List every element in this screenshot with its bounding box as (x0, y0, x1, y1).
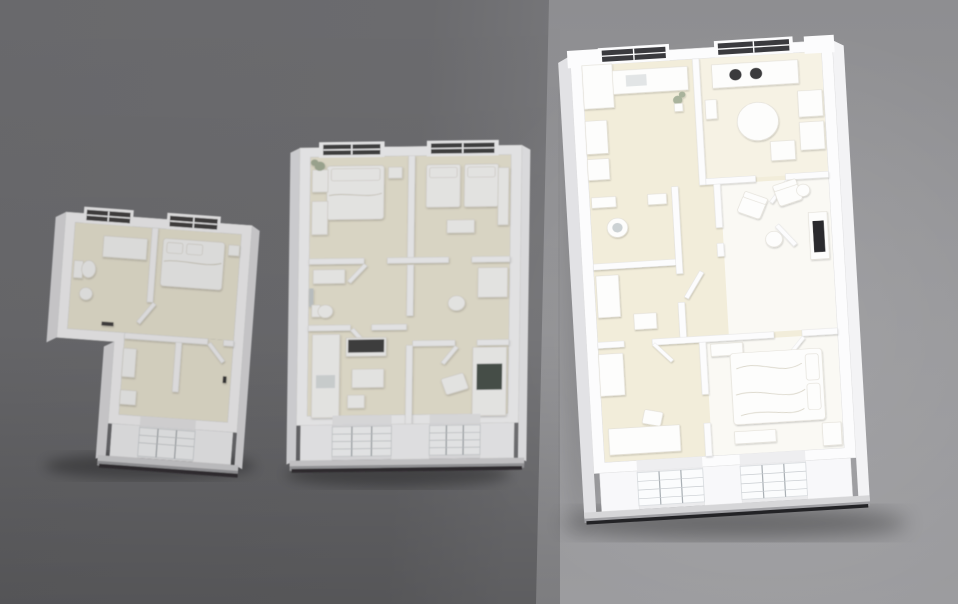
island (352, 369, 384, 388)
fridge-cabinet (582, 64, 614, 109)
wall-mirror (309, 288, 313, 307)
bench (734, 429, 776, 444)
model-medium (286, 139, 530, 472)
shelf (591, 196, 616, 208)
corner-block (804, 35, 835, 54)
front-window (740, 462, 807, 499)
cabinet (797, 90, 823, 118)
pillow (186, 244, 203, 256)
front-window (637, 469, 704, 506)
vanity (313, 269, 345, 283)
dresser (822, 422, 842, 446)
pillow-band (331, 168, 380, 181)
pillow (167, 242, 184, 254)
box (634, 313, 657, 330)
stool (347, 395, 364, 408)
back-window (319, 141, 385, 158)
low-cabinet (587, 158, 610, 180)
pillow (805, 353, 820, 380)
sink (316, 375, 335, 388)
tall-box (705, 99, 717, 119)
small-sink (647, 193, 666, 205)
counter (612, 66, 688, 94)
shelf (478, 267, 508, 297)
scene-photo (0, 0, 958, 604)
sink (626, 74, 647, 87)
storage-box (120, 390, 137, 405)
pillow (807, 383, 822, 410)
front-facade (300, 423, 514, 461)
chair (642, 409, 663, 426)
front-window (332, 426, 392, 456)
stool (448, 296, 465, 311)
long-bench (498, 167, 509, 224)
bookshelf (598, 353, 625, 396)
door-handle (223, 376, 227, 383)
tv-screen (812, 220, 825, 252)
cooktop (348, 339, 384, 352)
front-window (429, 425, 480, 455)
dark-appliance (477, 364, 503, 390)
appliance-block (770, 140, 795, 161)
pillow (468, 167, 496, 178)
screenshot-root (0, 0, 958, 604)
cabinet (799, 121, 825, 150)
shelf (596, 275, 621, 318)
shelf (122, 348, 137, 377)
side-table (447, 220, 475, 233)
plant-pot (674, 103, 683, 111)
nightstand (228, 245, 240, 256)
pillow (430, 167, 458, 178)
dresser (312, 201, 328, 235)
front-window-sill (332, 415, 391, 425)
nightstand (388, 167, 402, 178)
front-window-sill (430, 414, 481, 424)
cabinet (103, 236, 148, 260)
desk (608, 425, 681, 455)
low-cabinet (585, 120, 608, 154)
back-window (427, 140, 499, 157)
model-large (557, 33, 870, 525)
front-window (138, 427, 196, 460)
toilet (318, 305, 333, 318)
plant-stand (312, 170, 328, 192)
